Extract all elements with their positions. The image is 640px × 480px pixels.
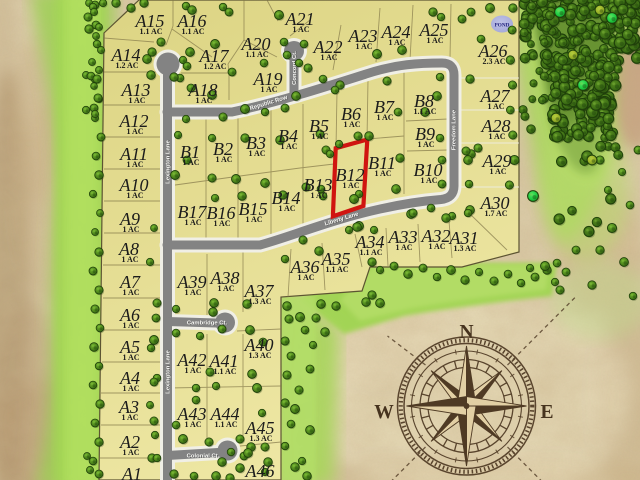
svg-text:1 AC: 1 AC bbox=[121, 255, 138, 264]
svg-text:1 AC: 1 AC bbox=[122, 288, 139, 297]
svg-text:1 AC: 1 AC bbox=[182, 158, 199, 167]
svg-text:1 AC: 1 AC bbox=[184, 366, 201, 375]
svg-text:1 AC: 1 AC bbox=[122, 321, 139, 330]
svg-text:1 AC: 1 AC bbox=[184, 288, 201, 297]
svg-text:1 AC: 1 AC bbox=[128, 96, 145, 105]
svg-text:W: W bbox=[374, 402, 394, 423]
svg-text:1 AC: 1 AC bbox=[260, 85, 277, 94]
svg-text:1 AC: 1 AC bbox=[126, 160, 143, 169]
svg-text:1 AC: 1 AC bbox=[395, 243, 412, 252]
svg-text:1 AC: 1 AC bbox=[122, 384, 139, 393]
svg-text:1 AC: 1 AC bbox=[245, 215, 262, 224]
svg-text:E: E bbox=[540, 402, 553, 423]
svg-text:POND: POND bbox=[495, 23, 510, 29]
svg-text:1.1 AC: 1.1 AC bbox=[245, 50, 268, 59]
svg-text:1 AC: 1 AC bbox=[121, 413, 138, 422]
svg-text:1 AC: 1 AC bbox=[417, 140, 434, 149]
svg-text:1 AC: 1 AC bbox=[311, 132, 328, 141]
svg-text:1.7 AC: 1.7 AC bbox=[484, 209, 507, 218]
svg-text:1 AC: 1 AC bbox=[280, 142, 297, 151]
svg-text:1 AC: 1 AC bbox=[184, 420, 201, 429]
svg-text:1 AC: 1 AC bbox=[342, 181, 359, 190]
svg-text:Freedom Lane: Freedom Lane bbox=[452, 109, 458, 150]
svg-text:1 AC: 1 AC bbox=[215, 155, 232, 164]
svg-text:1.1 AC: 1.1 AC bbox=[359, 248, 382, 257]
svg-text:1 AC: 1 AC bbox=[374, 169, 391, 178]
svg-text:1.1 AC: 1.1 AC bbox=[325, 265, 348, 274]
svg-text:1 AC: 1 AC bbox=[122, 353, 139, 362]
svg-text:1 AC: 1 AC bbox=[126, 127, 143, 136]
svg-text:1 AC: 1 AC bbox=[278, 204, 295, 213]
svg-text:1 AC: 1 AC bbox=[195, 96, 212, 105]
svg-text:1 AC: 1 AC bbox=[428, 242, 445, 251]
svg-text:1 AC: 1 AC bbox=[489, 167, 506, 176]
svg-text:1.3 AC: 1.3 AC bbox=[248, 351, 271, 360]
svg-text:1.2 AC: 1.2 AC bbox=[203, 62, 226, 71]
svg-text:2.3 AC: 2.3 AC bbox=[482, 57, 505, 66]
svg-text:1.1 AC: 1.1 AC bbox=[413, 107, 436, 116]
svg-text:1 AC: 1 AC bbox=[126, 191, 143, 200]
svg-text:1 AC: 1 AC bbox=[184, 218, 201, 227]
svg-text:1.1 AC: 1.1 AC bbox=[214, 420, 237, 429]
svg-text:1 AC: 1 AC bbox=[292, 25, 309, 34]
svg-text:1 AC: 1 AC bbox=[310, 191, 327, 200]
svg-text:A1: A1 bbox=[121, 464, 142, 480]
svg-text:1.3 AC: 1.3 AC bbox=[248, 297, 271, 306]
svg-text:1 AC: 1 AC bbox=[343, 120, 360, 129]
svg-text:1.1 AC: 1.1 AC bbox=[139, 27, 162, 36]
svg-text:1.2 AC: 1.2 AC bbox=[115, 61, 138, 70]
svg-text:1 AC: 1 AC bbox=[122, 448, 139, 457]
svg-text:1 AC: 1 AC bbox=[122, 225, 139, 234]
svg-text:1.3 AC: 1.3 AC bbox=[453, 244, 476, 253]
svg-text:1 AC: 1 AC bbox=[376, 113, 393, 122]
svg-text:1 AC: 1 AC bbox=[388, 38, 405, 47]
svg-text:1 AC: 1 AC bbox=[420, 176, 437, 185]
svg-text:Lexington Lane: Lexington Lane bbox=[166, 350, 172, 394]
svg-text:A46: A46 bbox=[245, 461, 275, 480]
svg-text:1 AC: 1 AC bbox=[488, 132, 505, 141]
svg-text:1 AC: 1 AC bbox=[248, 149, 265, 158]
svg-text:1 AC: 1 AC bbox=[297, 273, 314, 282]
svg-text:Colonial Ct.: Colonial Ct. bbox=[187, 454, 220, 460]
svg-text:1 AC: 1 AC bbox=[217, 284, 234, 293]
svg-text:1.3 AC: 1.3 AC bbox=[249, 434, 272, 443]
svg-text:1 AC: 1 AC bbox=[320, 53, 337, 62]
svg-text:1.1 AC: 1.1 AC bbox=[213, 367, 236, 376]
svg-text:N: N bbox=[459, 322, 473, 343]
svg-text:1 AC: 1 AC bbox=[355, 42, 372, 51]
svg-text:1 AC: 1 AC bbox=[487, 102, 504, 111]
svg-text:1 AC: 1 AC bbox=[213, 219, 230, 228]
svg-text:Concord Ct.: Concord Ct. bbox=[292, 51, 298, 85]
svg-text:1.1 AC: 1.1 AC bbox=[181, 27, 204, 36]
svg-text:1 AC: 1 AC bbox=[426, 36, 443, 45]
